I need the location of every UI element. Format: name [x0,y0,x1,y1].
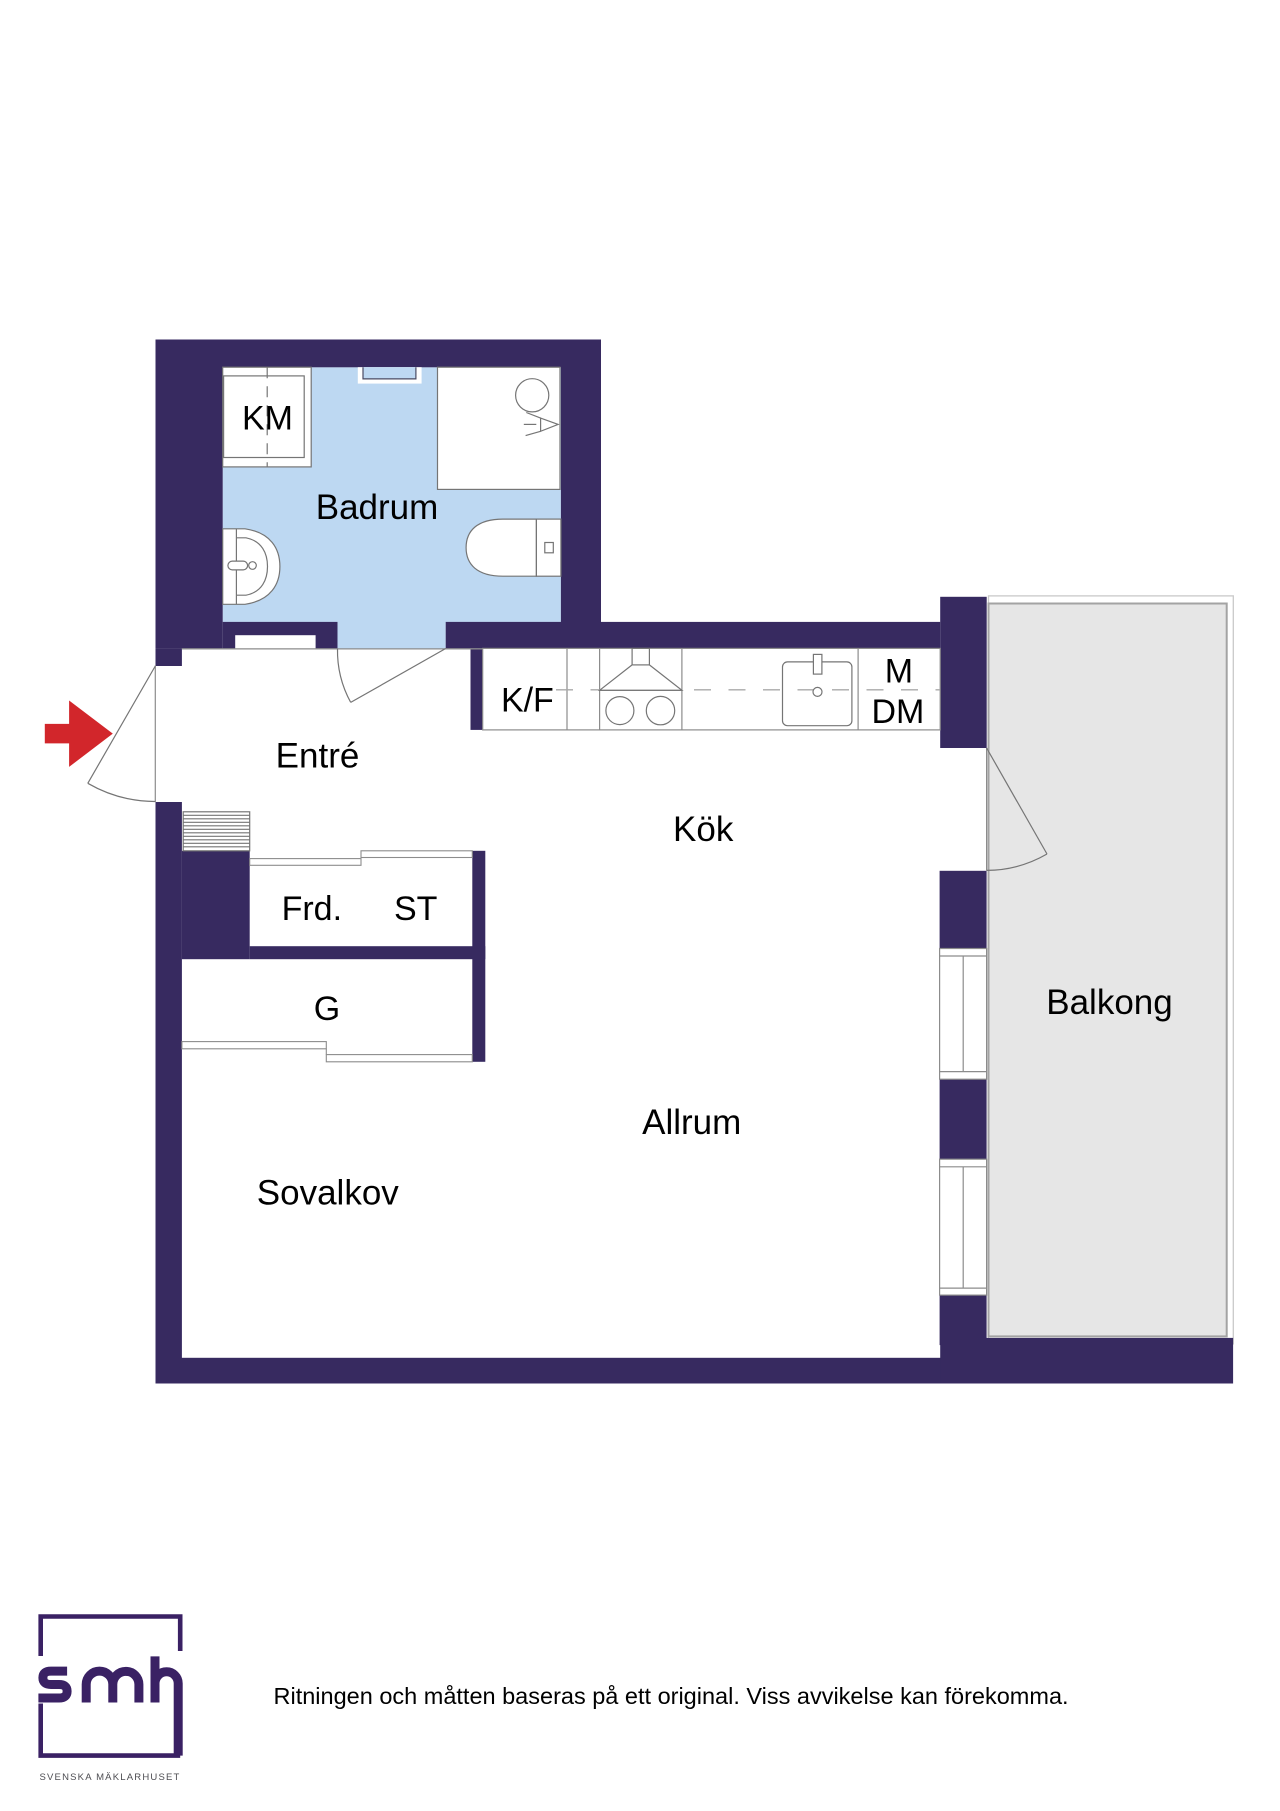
svg-text:Ritningen och måtten baseras p: Ritningen och måtten baseras på ett orig… [274,1683,1069,1709]
svg-text:G: G [314,990,340,1028]
svg-text:Frd.: Frd. [282,890,342,928]
svg-text:Entré: Entré [276,736,360,775]
svg-text:SVENSKA MÄKLARHUSET: SVENSKA MÄKLARHUSET [39,1772,180,1783]
svg-text:M: M [885,653,913,691]
svg-text:DM: DM [871,693,924,731]
svg-text:Kök: Kök [673,810,734,849]
svg-text:Allrum: Allrum [642,1103,741,1142]
svg-text:Badrum: Badrum [316,488,439,527]
svg-text:ST: ST [394,890,437,928]
svg-text:K/F: K/F [501,682,554,720]
svg-text:Sovalkov: Sovalkov [257,1174,400,1213]
svg-text:KM: KM [242,400,293,438]
svg-text:Balkong: Balkong [1046,983,1172,1022]
